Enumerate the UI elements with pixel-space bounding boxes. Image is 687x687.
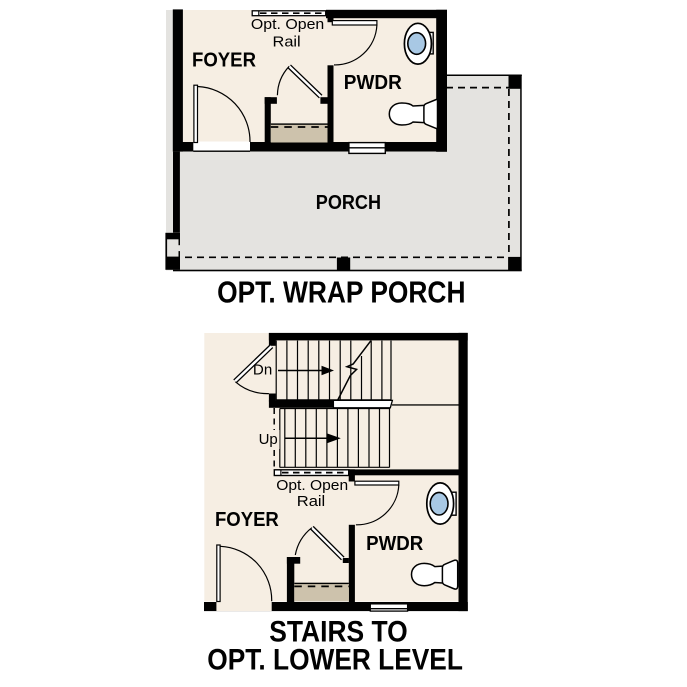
svg-text:Opt. Open: Opt. Open xyxy=(276,478,348,494)
svg-text:Rail: Rail xyxy=(273,35,301,51)
svg-text:FOYER: FOYER xyxy=(192,50,257,72)
svg-text:OPT. WRAP PORCH: OPT. WRAP PORCH xyxy=(217,274,465,309)
svg-text:PORCH: PORCH xyxy=(316,192,381,214)
svg-text:OPT. LOWER LEVEL: OPT. LOWER LEVEL xyxy=(207,644,463,677)
svg-text:Up: Up xyxy=(259,432,278,448)
svg-text:Opt. Open: Opt. Open xyxy=(251,17,324,33)
svg-text:PWDR: PWDR xyxy=(366,533,424,555)
svg-text:FOYER: FOYER xyxy=(215,509,279,531)
svg-text:Rail: Rail xyxy=(297,494,326,510)
svg-text:Dn: Dn xyxy=(253,362,272,378)
svg-text:PWDR: PWDR xyxy=(344,72,403,94)
